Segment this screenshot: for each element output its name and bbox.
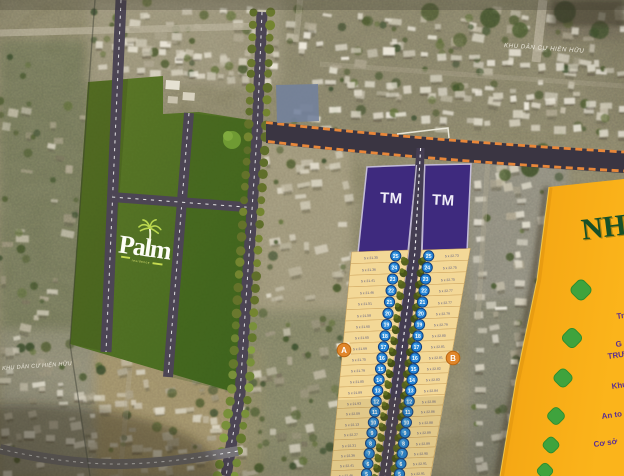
svg-text:5 x 21.69: 5 x 21.69 [353,347,367,352]
svg-text:18: 18 [382,334,388,340]
svg-text:20: 20 [385,312,391,318]
svg-text:5 x 22.75: 5 x 22.75 [441,278,455,283]
svg-text:5 x 21.79: 5 x 21.79 [351,369,365,374]
svg-text:19: 19 [417,323,423,329]
svg-text:5 x 22.81: 5 x 22.81 [429,356,443,361]
svg-text:25: 25 [426,254,432,260]
svg-text:Tr: Tr [616,311,624,321]
svg-text:14: 14 [376,378,382,384]
svg-text:5 x 21.51: 5 x 21.51 [358,302,372,307]
svg-text:18: 18 [415,334,421,340]
svg-text:21: 21 [387,300,393,306]
svg-text:24: 24 [424,266,430,272]
svg-text:5 x 22.83: 5 x 22.83 [426,378,440,383]
svg-text:5 x 22.79: 5 x 22.79 [436,312,450,317]
svg-text:22: 22 [388,289,394,295]
svg-text:TM: TM [379,189,403,207]
svg-text:5 x 21.46: 5 x 21.46 [360,291,374,296]
svg-text:5 x 22.82: 5 x 22.82 [427,367,441,372]
svg-text:17: 17 [414,345,420,351]
svg-text:5 x 22.75: 5 x 22.75 [443,266,457,271]
svg-text:5 x 22.77: 5 x 22.77 [438,301,452,306]
svg-text:5 x 22.84: 5 x 22.84 [424,389,438,394]
svg-text:5 x 22.81: 5 x 22.81 [431,345,445,350]
svg-text:16: 16 [379,356,385,362]
svg-text:5 x 22.80: 5 x 22.80 [432,334,446,339]
svg-text:20: 20 [418,312,424,318]
svg-text:5 x 21.36: 5 x 21.36 [362,268,376,273]
svg-text:16: 16 [412,356,418,362]
svg-text:25: 25 [393,254,399,260]
svg-text:13: 13 [408,389,414,395]
svg-text:5 x 22.77: 5 x 22.77 [439,289,453,294]
svg-text:NH: NH [579,208,624,246]
svg-text:14: 14 [409,378,415,384]
svg-text:13: 13 [375,389,381,395]
svg-text:5 x 21.89: 5 x 21.89 [348,391,362,396]
svg-text:5 x 21.35: 5 x 21.35 [364,256,378,261]
svg-text:5 x 22.73: 5 x 22.73 [445,254,459,259]
svg-text:5 x 21.65: 5 x 21.65 [355,336,369,341]
svg-text:5 x 21.85: 5 x 21.85 [350,380,364,385]
svg-text:22: 22 [421,289,427,295]
svg-text:15: 15 [411,367,417,373]
svg-text:5 x 21.60: 5 x 21.60 [356,325,370,330]
svg-text:24: 24 [391,266,397,272]
svg-text:5 x 21.75: 5 x 21.75 [352,358,366,363]
svg-text:21: 21 [420,300,426,306]
svg-text:23: 23 [423,277,429,283]
svg-text:B: B [450,354,456,363]
svg-text:5 x 21.41: 5 x 21.41 [361,279,375,284]
svg-text:5 x 22.79: 5 x 22.79 [434,323,448,328]
svg-text:Khu: Khu [611,380,624,391]
svg-text:A: A [341,346,347,355]
svg-text:5 x 21.58: 5 x 21.58 [357,314,371,319]
svg-text:23: 23 [390,277,396,283]
svg-text:TM: TM [431,191,455,209]
svg-text:19: 19 [384,323,390,329]
svg-text:17: 17 [381,345,387,351]
svg-text:15: 15 [378,367,384,373]
svg-text:G: G [615,339,622,349]
